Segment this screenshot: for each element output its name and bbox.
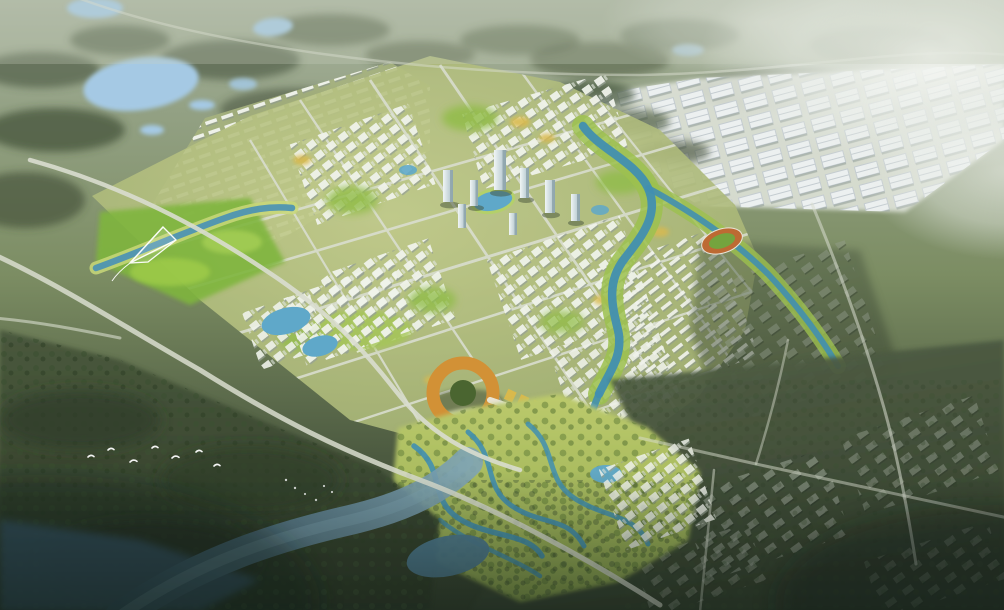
tower	[509, 213, 517, 235]
aerial-render-stage	[0, 0, 1004, 610]
masterplan-aerial-view	[0, 0, 1004, 610]
ring-courtyard	[450, 380, 476, 406]
tower	[458, 204, 466, 228]
